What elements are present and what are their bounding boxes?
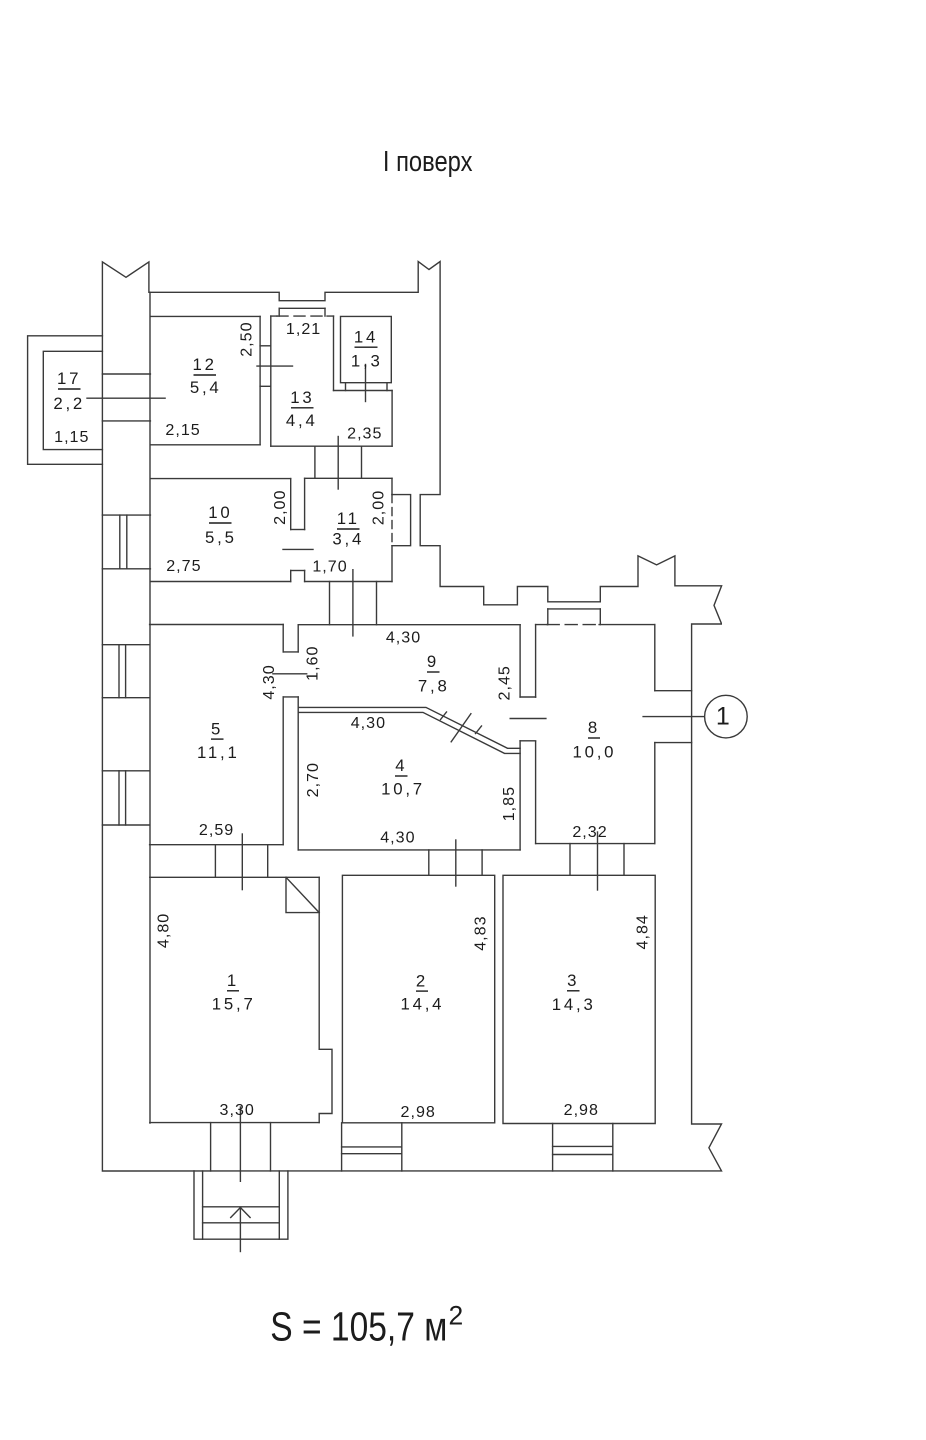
svg-text:І поверх: І поверх <box>383 146 473 178</box>
svg-text:11: 11 <box>337 509 360 528</box>
svg-text:1,60: 1,60 <box>303 646 321 681</box>
svg-text:1,21: 1,21 <box>286 320 321 338</box>
svg-text:3,30: 3,30 <box>220 1101 255 1119</box>
svg-text:2,75: 2,75 <box>166 557 201 575</box>
svg-text:2,32: 2,32 <box>572 823 607 841</box>
svg-text:9: 9 <box>427 652 439 671</box>
svg-text:17: 17 <box>57 369 81 388</box>
svg-text:2: 2 <box>416 971 428 990</box>
svg-text:2,35: 2,35 <box>347 425 382 443</box>
svg-text:4,84: 4,84 <box>634 914 652 949</box>
svg-text:14: 14 <box>354 327 378 346</box>
svg-text:4: 4 <box>395 756 407 775</box>
svg-text:14,4: 14,4 <box>400 994 444 1013</box>
svg-text:4,30: 4,30 <box>380 828 415 846</box>
svg-text:10,7: 10,7 <box>381 780 425 799</box>
svg-text:2,00: 2,00 <box>271 490 289 525</box>
svg-text:5,5: 5,5 <box>205 528 237 547</box>
svg-text:S = 105,7 м: S = 105,7 м <box>270 1303 447 1349</box>
svg-text:2,45: 2,45 <box>496 665 514 700</box>
svg-text:1,70: 1,70 <box>312 558 347 576</box>
svg-text:4,4: 4,4 <box>286 411 318 430</box>
svg-text:5,4: 5,4 <box>190 378 222 397</box>
svg-text:2,70: 2,70 <box>304 762 322 797</box>
svg-text:2,59: 2,59 <box>199 821 234 839</box>
svg-text:1,3: 1,3 <box>351 352 383 371</box>
svg-text:5: 5 <box>211 719 223 738</box>
svg-text:8: 8 <box>588 718 600 737</box>
svg-text:1: 1 <box>227 971 239 990</box>
svg-text:12: 12 <box>193 355 217 374</box>
svg-text:14,3: 14,3 <box>552 995 596 1014</box>
svg-text:3: 3 <box>567 971 579 990</box>
svg-text:4,30: 4,30 <box>386 629 421 647</box>
svg-text:2,98: 2,98 <box>564 1101 599 1119</box>
svg-text:1: 1 <box>716 703 730 731</box>
svg-text:2,98: 2,98 <box>401 1103 436 1121</box>
svg-text:2,50: 2,50 <box>238 321 256 356</box>
svg-text:15,7: 15,7 <box>212 994 256 1013</box>
svg-text:10: 10 <box>208 503 232 522</box>
svg-text:1,85: 1,85 <box>500 786 518 821</box>
svg-text:4,80: 4,80 <box>155 913 173 948</box>
svg-text:2,15: 2,15 <box>165 421 200 439</box>
svg-text:7,8: 7,8 <box>418 677 450 696</box>
svg-text:4,30: 4,30 <box>351 714 386 732</box>
svg-text:2,00: 2,00 <box>369 490 387 525</box>
svg-text:4,30: 4,30 <box>260 664 278 699</box>
svg-text:2,2: 2,2 <box>53 394 85 413</box>
svg-text:11,1: 11,1 <box>197 743 240 762</box>
svg-text:13: 13 <box>290 388 314 407</box>
svg-text:4,83: 4,83 <box>471 915 489 950</box>
svg-text:3,4: 3,4 <box>332 530 364 549</box>
svg-text:10,0: 10,0 <box>572 743 616 762</box>
svg-text:1,15: 1,15 <box>54 428 89 446</box>
svg-text:2: 2 <box>449 1301 464 1331</box>
